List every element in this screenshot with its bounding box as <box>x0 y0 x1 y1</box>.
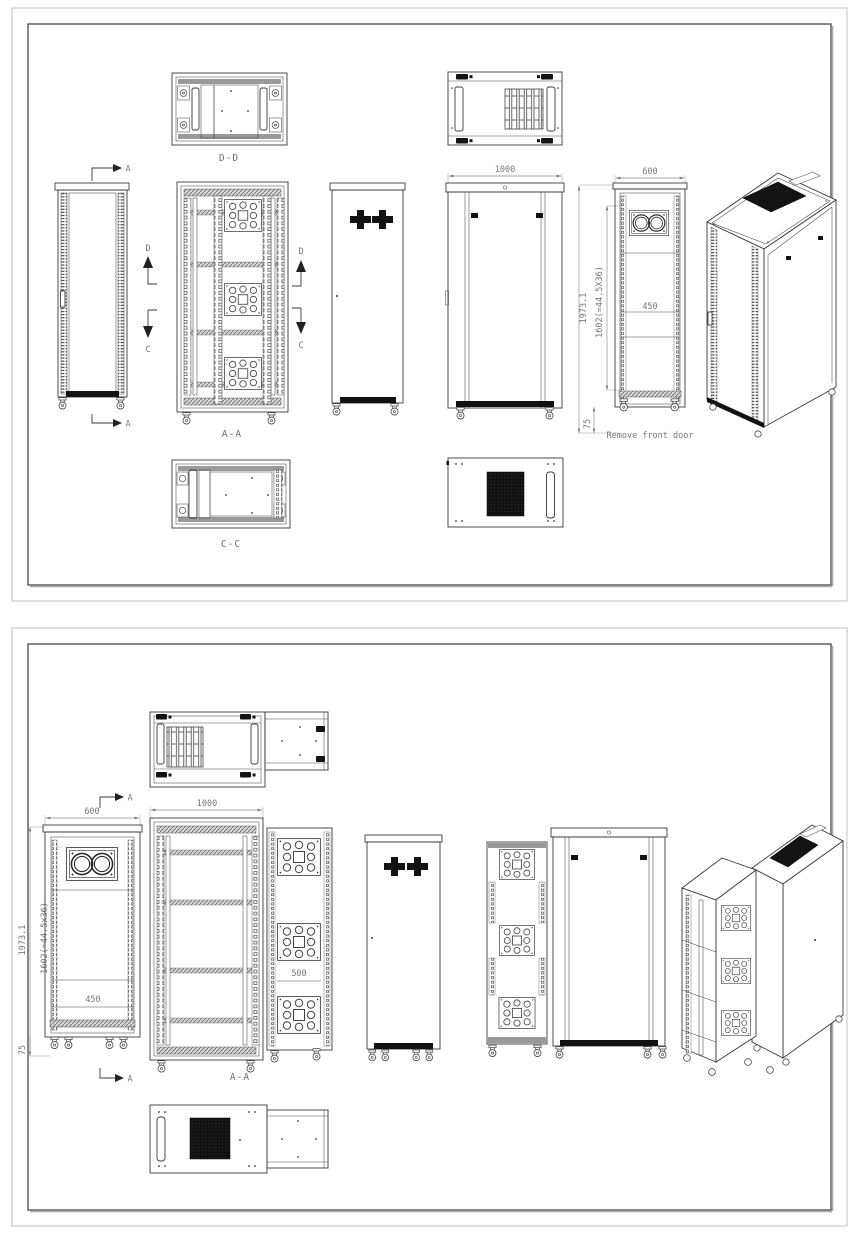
cut-arrow-d: D <box>145 244 150 254</box>
dim-inner: 450 <box>642 302 657 312</box>
drawing-page: D-D A A D <box>0 0 859 1234</box>
cut-arrow-c: C <box>298 341 303 351</box>
cut-arrow-a: A <box>127 794 132 804</box>
label-section-dd: D-D <box>219 153 239 164</box>
dim-height: 1973.1 <box>18 925 28 956</box>
dim-depth: 1000 <box>495 165 515 175</box>
label-section-aa: A-A <box>230 1072 250 1083</box>
dim-inner: 450 <box>85 995 100 1005</box>
dim-width: 600 <box>84 807 99 817</box>
label-section-cc: C-C <box>221 539 241 550</box>
dim-height: 1973.1 <box>579 293 589 324</box>
sheet-1: D-D A A D <box>0 0 859 614</box>
cut-arrow-a: A <box>125 420 130 430</box>
cut-arrow-c: C <box>145 345 150 355</box>
sheet-2-canvas: A 600 1973.1 1602(=44.5x36) 75 450 A 100… <box>0 614 859 1234</box>
cut-arrow-a: A <box>127 1075 132 1085</box>
sheet-2: A 600 1973.1 1602(=44.5x36) 75 450 A 100… <box>0 614 859 1234</box>
dim-base: 75 <box>583 419 593 429</box>
cut-arrow-a: A <box>125 165 130 175</box>
cut-arrow-d: D <box>298 247 303 257</box>
dim-width: 600 <box>642 167 657 177</box>
note-remove-front-door: Remove front door <box>607 431 694 441</box>
view-isometric <box>707 172 836 437</box>
sheet-1-canvas: D-D A A D <box>0 0 859 614</box>
dim-base: 75 <box>18 1045 28 1055</box>
dim-depth: 1000 <box>197 799 217 809</box>
dim-rack-units: 1602(=44.5X36) <box>595 266 605 338</box>
dim-extension: 500 <box>291 969 306 979</box>
label-section-aa: A-A <box>222 429 242 440</box>
